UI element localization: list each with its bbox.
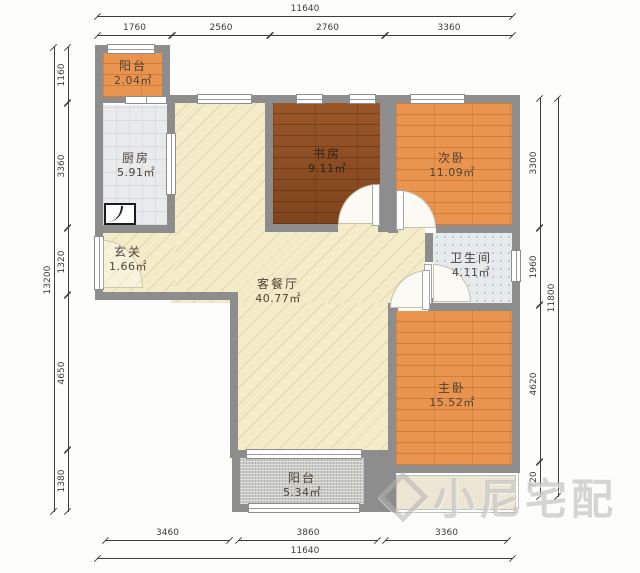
room-label-study: 书房 9.11㎡: [292, 148, 362, 175]
dim-bottom-seg: 3860: [238, 528, 378, 541]
room-name: 次卧: [438, 152, 466, 166]
room-area: 4.11㎡: [452, 267, 490, 280]
master-bay-window: [394, 473, 518, 512]
room-area: 15.52㎡: [429, 397, 475, 410]
room-name: 卫生间: [450, 252, 492, 266]
room-name: 客餐厅: [257, 278, 299, 292]
room-area: 5.91㎡: [117, 167, 155, 180]
dim-top-seg: 3360: [385, 23, 513, 36]
dim-top-seg: 2760: [270, 23, 385, 36]
room-area: 2.04㎡: [114, 75, 152, 88]
dim-bottom-seg: 3360: [385, 528, 508, 541]
dim-left-seg: 1320: [56, 228, 69, 295]
dim-right-seg: 720: [528, 462, 541, 497]
dim-left-total: 13200: [42, 47, 55, 512]
room-label-bathroom: 卫生间 4.11㎡: [432, 252, 510, 279]
wall-kitchen-bottom: [95, 225, 175, 233]
dim-left-seg: 1160: [56, 47, 69, 103]
dim-right-total: 11800: [546, 98, 559, 497]
window-bedroom-second-top: [410, 94, 465, 104]
dim-left-seg: 3360: [56, 103, 69, 228]
room-label-bedroom-second: 次卧 11.09㎡: [414, 152, 490, 179]
room-area: 11.09㎡: [429, 167, 475, 180]
dim-top-total: 11640: [97, 4, 513, 17]
dim-left-seg: 4650: [56, 295, 69, 450]
wall-balcony-bottom-right: [364, 450, 396, 512]
wall-study-bedroom: [380, 95, 396, 232]
wall-bath-bottom-b: [428, 303, 520, 311]
window-study-top-right: [349, 94, 376, 104]
room-label-balcony-bottom: 阳台 5.34㎡: [268, 472, 336, 499]
bedroom-second-door-leaf: [396, 190, 404, 230]
study-door-leaf: [372, 184, 380, 226]
wall-master-left: [388, 311, 396, 473]
window-balcony-railing: [248, 503, 360, 513]
dim-top-seg: 2560: [172, 23, 270, 36]
room-area: 9.11㎡: [308, 163, 346, 176]
room-name: 阳台: [119, 60, 147, 74]
bedroom-master-door-leaf: [422, 270, 430, 310]
wall-study-bottom-a: [265, 224, 338, 232]
dim-left-seg: 1380: [56, 450, 69, 512]
room-name: 玄关: [114, 246, 142, 260]
dim-bottom-seg: 3460: [105, 528, 230, 541]
window-living-balcony: [246, 449, 362, 459]
sliding-door-balcony-kitchen: [125, 96, 167, 104]
dim-top-seg: 1760: [97, 23, 172, 36]
dim-right-seg: 1960: [528, 228, 541, 305]
room-name: 厨房: [122, 152, 150, 166]
wall-study-left: [265, 95, 273, 232]
dim-right-seg: 4620: [528, 305, 541, 462]
room-name: 书房: [313, 148, 341, 162]
room-label-entry: 玄关 1.66㎡: [96, 246, 160, 273]
wall-right: [512, 95, 520, 473]
room-label-kitchen: 厨房 5.91㎡: [103, 152, 169, 179]
kitchen-door-icon: [104, 203, 136, 225]
living-dining-floor-lower: [238, 303, 396, 455]
window-study-top-left: [296, 94, 323, 104]
room-area: 1.66㎡: [109, 261, 147, 274]
wall-living-left-lower: [230, 292, 238, 458]
dim-right-seg: 3300: [528, 98, 541, 228]
floor-plan: 阳台 2.04㎡ 厨房 5.91㎡ 玄关 1.66㎡ 书房 9.11㎡ 次卧 1…: [0, 0, 640, 573]
window-living-top: [197, 94, 252, 104]
window-bathroom-right: [511, 250, 521, 282]
window-balcony-top: [107, 44, 155, 54]
dim-bottom-total: 11640: [97, 546, 513, 559]
room-name: 主卧: [438, 382, 466, 396]
room-label-living-dining: 客餐厅 40.77㎡: [236, 278, 320, 305]
room-label-bedroom-master: 主卧 15.52㎡: [412, 382, 492, 409]
room-label-balcony-top: 阳台 2.04㎡: [103, 60, 163, 87]
room-area: 40.77㎡: [255, 293, 301, 306]
room-area: 5.34㎡: [283, 487, 321, 500]
wall-entry-bottom: [95, 292, 238, 300]
wall-master-bottom: [388, 465, 520, 473]
wall-bedroom2-bottom-b: [436, 225, 520, 233]
room-name: 阳台: [288, 472, 316, 486]
